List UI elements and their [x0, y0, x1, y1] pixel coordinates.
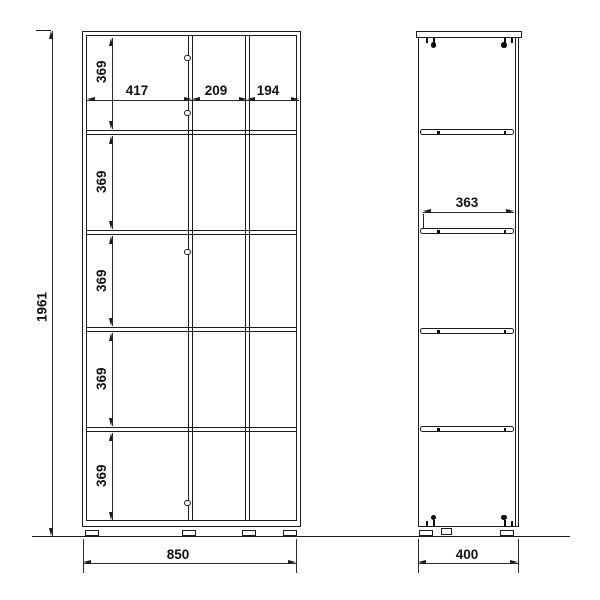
shelf-line: [86, 234, 297, 235]
dim-label-overall-width: 850: [158, 548, 198, 562]
divider-line: [249, 35, 250, 521]
divider-line: [192, 35, 193, 521]
side-shelf-bar: [420, 426, 514, 432]
shelf-line: [86, 431, 297, 432]
arrowhead-left-icon: [83, 560, 91, 564]
dim-extension-line: [518, 539, 519, 573]
dim-label-column-width: 209: [196, 84, 236, 98]
arrowhead-left-icon: [87, 97, 95, 101]
arrowhead-up-icon: [109, 38, 113, 46]
arrowhead-down-icon: [109, 318, 113, 326]
divider-line: [245, 35, 246, 521]
mounting-pin-icon: [511, 38, 513, 43]
shelf-pin-icon: [437, 131, 440, 134]
shelf-pin-icon: [437, 330, 440, 333]
shelf-line: [86, 427, 297, 428]
dim-line-row-height: [112, 333, 113, 426]
dim-label-overall-height: 1961: [34, 277, 50, 337]
dim-label-row-height: 369: [94, 259, 109, 303]
arrowhead-down-icon: [109, 121, 113, 129]
dim-line-row-height: [112, 433, 113, 520]
handle-hole-icon: [184, 249, 191, 256]
side-view-inner-wall-line: [515, 37, 516, 527]
shelf-pin-icon: [504, 428, 507, 431]
dim-extension-line: [423, 214, 424, 228]
arrowhead-right-icon: [510, 560, 518, 564]
arrowhead-up-icon: [109, 433, 113, 441]
arrowhead-up-icon: [49, 31, 53, 39]
shelf-pin-icon: [504, 230, 507, 233]
dim-label-row-height: 369: [94, 50, 109, 94]
shelf-pin-icon: [437, 230, 440, 233]
arrowhead-right-icon: [506, 209, 514, 213]
mounting-pin-icon: [431, 42, 437, 48]
foot-icon: [441, 528, 452, 535]
shelf-line: [86, 134, 297, 135]
dim-extension-line: [418, 539, 419, 573]
dim-extension-line: [83, 539, 84, 573]
shelf-line: [86, 230, 297, 231]
handle-hole-icon: [184, 500, 191, 507]
arrowhead-down-icon: [109, 221, 113, 229]
handle-hole-icon: [184, 55, 191, 62]
arrowhead-up-icon: [109, 136, 113, 144]
arrowhead-up-icon: [109, 333, 113, 341]
shelf-pin-icon: [504, 330, 507, 333]
shelf-pin-icon: [437, 428, 440, 431]
technical-drawing-canvas: 1961 369 369 369 369 369 417 209 194 363…: [0, 0, 600, 600]
shelf-pin-icon: [504, 131, 507, 134]
dim-label-column-width: 417: [117, 84, 157, 98]
dim-line-overall-width: [83, 563, 296, 564]
handle-hole-icon: [184, 110, 191, 117]
dim-label-row-height: 369: [94, 454, 109, 498]
arrowhead-right-icon: [184, 97, 192, 101]
mounting-pin-icon: [501, 42, 507, 48]
dim-label-row-height: 369: [94, 357, 109, 401]
dim-label-column-width: 194: [248, 84, 288, 98]
mounting-pin-icon: [426, 521, 428, 526]
arrowhead-down-icon: [109, 418, 113, 426]
ground-line: [32, 536, 570, 538]
dim-line-row-height: [112, 38, 113, 129]
shelf-line: [86, 331, 297, 332]
side-shelf-bar: [420, 328, 514, 334]
dim-line-shelf-depth: [423, 212, 514, 213]
mounting-pin-icon: [433, 520, 435, 527]
dim-line-overall-depth: [418, 563, 518, 564]
arrowhead-down-icon: [49, 528, 53, 536]
mounting-pin-icon: [426, 38, 428, 43]
dim-label-shelf-depth: 363: [447, 196, 487, 210]
side-shelf-bar: [420, 129, 514, 135]
arrowhead-up-icon: [109, 236, 113, 244]
dim-extension-line: [296, 539, 297, 573]
arrowhead-left-icon: [418, 560, 426, 564]
arrowhead-down-icon: [109, 512, 113, 520]
shelf-line: [86, 130, 297, 131]
dim-line-row-height: [112, 136, 113, 229]
dim-line-overall-height: [52, 31, 53, 536]
dim-line-row-height: [112, 236, 113, 326]
dim-label-overall-depth: 400: [447, 548, 487, 562]
mounting-pin-icon: [511, 521, 513, 526]
arrowhead-right-icon: [239, 97, 247, 101]
mounting-pin-icon: [504, 520, 506, 527]
side-view-outline: [418, 37, 519, 527]
dim-label-row-height: 369: [94, 160, 109, 204]
arrowhead-left-icon: [423, 209, 431, 213]
side-shelf-bar: [420, 228, 514, 234]
divider-line: [188, 35, 189, 521]
shelf-line: [86, 327, 297, 328]
arrowhead-right-icon: [291, 97, 299, 101]
arrowhead-right-icon: [288, 560, 296, 564]
